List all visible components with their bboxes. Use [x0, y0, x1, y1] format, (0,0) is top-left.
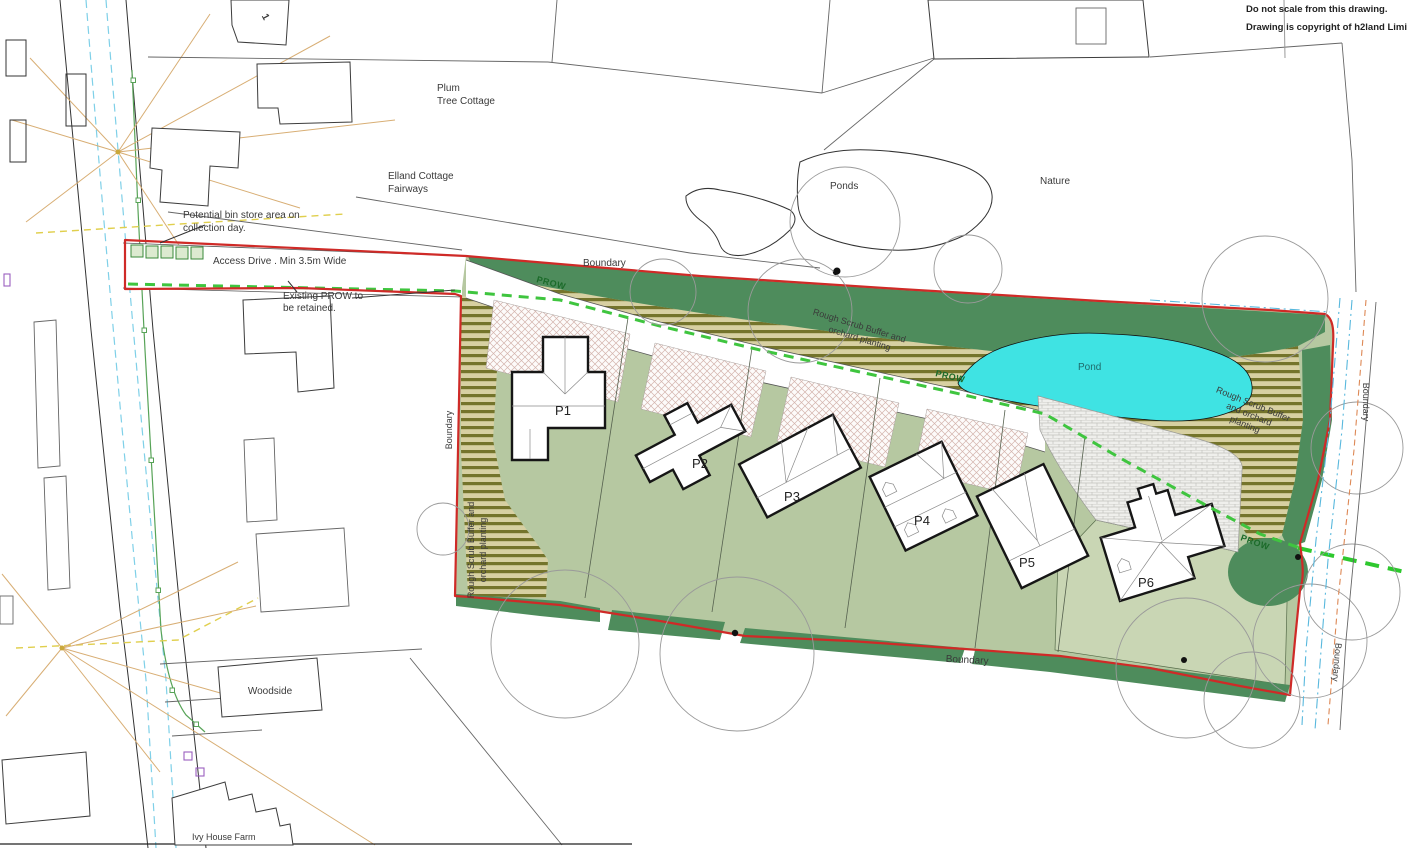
tree-trunk-dot: [834, 268, 841, 275]
label-plot-p3: P3: [784, 489, 800, 504]
label-pond: Pond: [1078, 362, 1101, 373]
boundary-post-dot-4: [1295, 554, 1301, 560]
label-boundary-left: Boundary: [444, 410, 454, 449]
label-prow-retained-1: Existing PROW to: [283, 291, 363, 302]
utility-cyan-line-2: [106, 0, 176, 848]
building-top-right: [928, 0, 1149, 59]
label-boundary-right: Boundary: [1361, 383, 1371, 422]
boundary-post-dot-3: [1181, 657, 1187, 663]
building-roadside-north: [150, 128, 240, 206]
utility-cyan-line-1: [86, 0, 156, 848]
label-scrub-left-1: Rough Scrub Buffer and: [466, 502, 476, 598]
bin-store-squares: [131, 245, 203, 259]
small-structure-west: [0, 596, 13, 624]
label-boundary-bottom: Boundary: [945, 654, 988, 667]
label-boundary-top: Boundary: [583, 258, 626, 269]
purple-marker-2: [184, 752, 192, 760]
site-plan-drawing: Do not scale from this drawing. Drawing …: [0, 0, 1407, 848]
west-road: [2, 0, 395, 848]
road-edge-right: [126, 0, 206, 848]
label-ivy-house-farm: Ivy House Farm: [192, 832, 256, 842]
note-do-not-scale: Do not scale from this drawing.: [1246, 4, 1387, 15]
label-scrub-left-2: orchard planting: [478, 518, 488, 583]
utility-pole-top: [116, 150, 121, 155]
label-boundary-bottom-right: Boundary: [1330, 643, 1343, 683]
north-ponds: [686, 150, 992, 256]
building-outline-small: [244, 438, 277, 522]
label-plot-p6: P6: [1138, 575, 1154, 590]
note-copyright: Drawing is copyright of h2land Limited: [1246, 22, 1407, 33]
label-prow-retained-2: be retained.: [283, 303, 336, 314]
east-grey-line: [1340, 302, 1376, 730]
label-plot-p2: P2: [692, 456, 708, 471]
label-woodside: Woodside: [248, 686, 293, 697]
label-access-drive: Access Drive . Min 3.5m Wide: [213, 256, 347, 267]
label-ponds: Ponds: [830, 181, 858, 192]
boundary-post-dot-2: [732, 630, 738, 636]
building-plum-tree-cottage: [257, 62, 352, 124]
label-plum-2: Tree Cottage: [437, 96, 495, 107]
small-building-west-2: [10, 120, 26, 162]
label-elland-2: Fairways: [388, 184, 428, 195]
purple-marker-3: [196, 768, 204, 776]
pond-outline-west: [686, 188, 795, 255]
verge-strip-1: [34, 320, 60, 468]
utility-yellow-line-bottom: [16, 598, 258, 648]
small-building-west-1: [6, 40, 26, 76]
label-bin-store-1: Potential bin store area on: [183, 210, 300, 221]
label-plot-p5: P5: [1019, 555, 1035, 570]
building-outline-small-2: [256, 528, 349, 612]
verge-strip-2: [44, 476, 70, 590]
label-plot-p1: P1: [555, 403, 571, 418]
label-bin-store-2: collection day.: [183, 223, 246, 234]
label-plum-1: Plum: [437, 83, 460, 94]
label-plot-p4: P4: [914, 513, 930, 528]
building-bottom-left-partial: [2, 752, 90, 824]
label-nature: Nature: [1040, 176, 1070, 187]
label-elland-1: Elland Cottage: [388, 171, 454, 182]
building-no1: [231, 0, 289, 45]
utility-pole-bottom: [60, 646, 65, 651]
purple-marker-1: [4, 274, 10, 286]
